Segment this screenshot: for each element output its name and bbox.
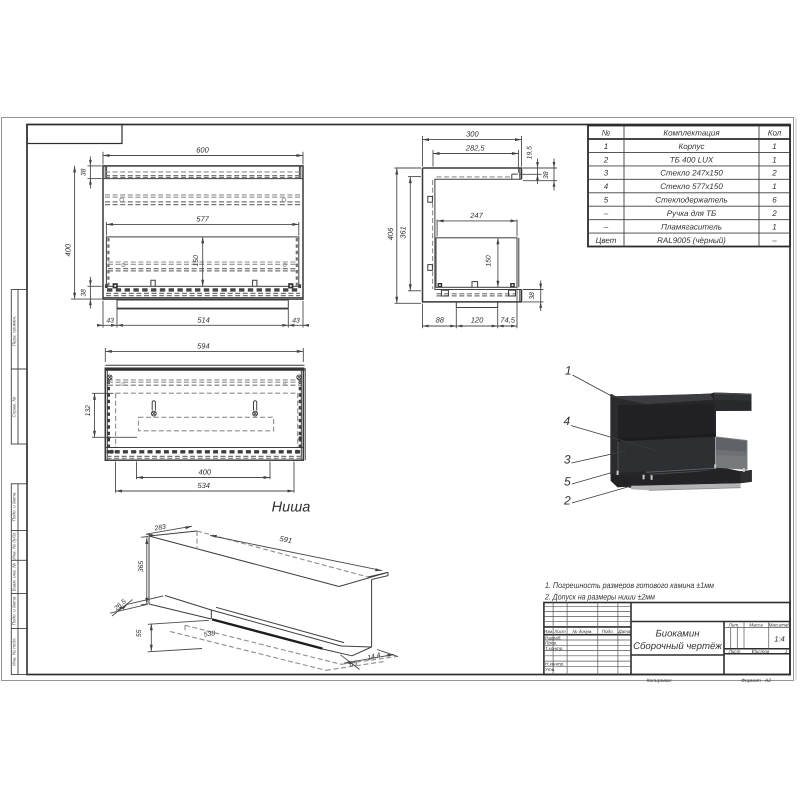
svg-text:132: 132 — [85, 405, 92, 417]
svg-text:594: 594 — [197, 341, 210, 350]
svg-text:–: – — [603, 209, 609, 218]
svg-text:Изм.: Изм. — [544, 629, 553, 634]
svg-text:Подп.: Подп. — [602, 629, 614, 634]
svg-text:–: – — [603, 223, 609, 232]
svg-text:1:4: 1:4 — [774, 635, 785, 644]
svg-text:Биокамин: Биокамин — [656, 629, 701, 640]
svg-text:Подп. и дата: Подп. и дата — [12, 596, 17, 625]
svg-text:43: 43 — [292, 318, 300, 325]
svg-text:1: 1 — [772, 223, 776, 232]
svg-text:Ручка для ТБ: Ручка для ТБ — [667, 209, 716, 218]
svg-text:2: 2 — [771, 169, 777, 178]
svg-text:534: 534 — [197, 481, 210, 490]
svg-text:№ докум.: № докум. — [572, 629, 592, 634]
svg-text:600: 600 — [196, 146, 209, 155]
svg-text:300: 300 — [466, 130, 479, 139]
svg-text:19,5: 19,5 — [527, 146, 534, 159]
svg-text:120: 120 — [471, 315, 484, 324]
svg-text:Пров.: Пров. — [545, 641, 557, 646]
svg-text:3: 3 — [564, 452, 571, 466]
svg-text:Копировал: Копировал — [647, 678, 672, 684]
svg-text:Масса: Масса — [749, 622, 763, 627]
svg-text:2. Допуск на размеры ниши ±2мм: 2. Допуск на размеры ниши ±2мм — [544, 593, 655, 602]
svg-text:400: 400 — [63, 243, 72, 256]
svg-text:Цвет: Цвет — [596, 236, 617, 245]
svg-text:1. Погрешность размеров готово: 1. Погрешность размеров готового камина … — [545, 581, 714, 590]
svg-text:Стекло 577х150: Стекло 577х150 — [660, 182, 723, 191]
svg-text:Комплектация: Комплектация — [663, 128, 720, 137]
svg-text:577: 577 — [196, 214, 209, 223]
svg-text:Утв.: Утв. — [545, 667, 555, 672]
svg-text:5: 5 — [604, 196, 609, 205]
svg-text:282,5: 282,5 — [465, 144, 486, 153]
svg-text:1: 1 — [604, 142, 608, 151]
svg-text:6: 6 — [772, 196, 777, 205]
svg-text:Лист: Лист — [553, 629, 566, 634]
svg-text:№: № — [602, 128, 611, 137]
svg-text:365: 365 — [138, 561, 145, 573]
svg-text:3: 3 — [604, 169, 609, 178]
svg-text:43: 43 — [106, 318, 114, 325]
svg-text:55: 55 — [136, 629, 143, 637]
svg-text:38: 38 — [81, 289, 88, 297]
svg-text:Корпус: Корпус — [678, 142, 704, 151]
svg-text:Т.контр.: Т.контр. — [545, 646, 564, 651]
svg-text:514: 514 — [197, 316, 210, 325]
svg-text:Инв. № подл.: Инв. № подл. — [12, 637, 17, 666]
svg-text:Стекло 247х150: Стекло 247х150 — [660, 169, 723, 178]
svg-text:Кол: Кол — [768, 128, 782, 137]
svg-text:Формат: Формат — [741, 678, 761, 684]
svg-text:38: 38 — [543, 171, 550, 179]
svg-text:1: 1 — [772, 182, 776, 191]
svg-text:5: 5 — [564, 475, 571, 489]
svg-text:Листов: Листов — [752, 649, 770, 654]
svg-text:1: 1 — [565, 364, 572, 378]
svg-text:4: 4 — [563, 414, 570, 428]
svg-text:Справ. №: Справ. № — [12, 397, 17, 418]
svg-text:ТБ 400 LUX: ТБ 400 LUX — [670, 155, 714, 164]
svg-text:2: 2 — [603, 155, 609, 164]
svg-text:Разраб.: Разраб. — [545, 635, 562, 640]
svg-text:38: 38 — [529, 292, 536, 300]
svg-text:RAL9005 (чёрный): RAL9005 (чёрный) — [657, 236, 726, 245]
svg-text:Дата: Дата — [617, 629, 631, 634]
svg-text:Ниша: Ниша — [272, 500, 311, 516]
svg-text:Пламягаситель: Пламягаситель — [661, 223, 722, 232]
svg-text:Перв. примен.: Перв. примен. — [12, 316, 17, 347]
svg-text:247: 247 — [469, 211, 483, 220]
svg-text:88: 88 — [436, 315, 445, 324]
svg-text:Н.контр.: Н.контр. — [545, 662, 564, 667]
svg-text:Инв. № дубл.: Инв. № дубл. — [12, 531, 17, 559]
svg-text:1: 1 — [772, 142, 776, 151]
svg-text:Взам. инв. №: Взам. инв. № — [12, 563, 17, 591]
svg-text:74,5: 74,5 — [500, 315, 515, 324]
svg-text:Подп. и дата: Подп. и дата — [12, 492, 17, 521]
svg-text:–: – — [771, 236, 777, 245]
svg-text:Лит.: Лит. — [728, 622, 740, 627]
svg-text:1: 1 — [772, 155, 776, 164]
svg-text:1: 1 — [785, 649, 788, 654]
svg-text:150: 150 — [193, 255, 200, 267]
svg-text:361: 361 — [399, 226, 408, 239]
svg-text:Стеклодержатель: Стеклодержатель — [655, 196, 727, 205]
svg-text:406: 406 — [386, 227, 395, 240]
svg-text:38: 38 — [81, 168, 88, 176]
svg-text:4: 4 — [604, 182, 609, 191]
svg-text:65: 65 — [349, 660, 358, 668]
svg-text:2: 2 — [771, 209, 777, 218]
svg-text:Масштаб: Масштаб — [769, 622, 791, 627]
svg-text:Сборочный чертёж: Сборочный чертёж — [633, 641, 722, 652]
svg-text:Лист: Лист — [728, 649, 741, 654]
svg-text:150: 150 — [485, 255, 492, 267]
svg-text:400: 400 — [199, 467, 212, 476]
svg-text:2: 2 — [563, 493, 571, 507]
svg-text:А2: А2 — [764, 678, 771, 684]
